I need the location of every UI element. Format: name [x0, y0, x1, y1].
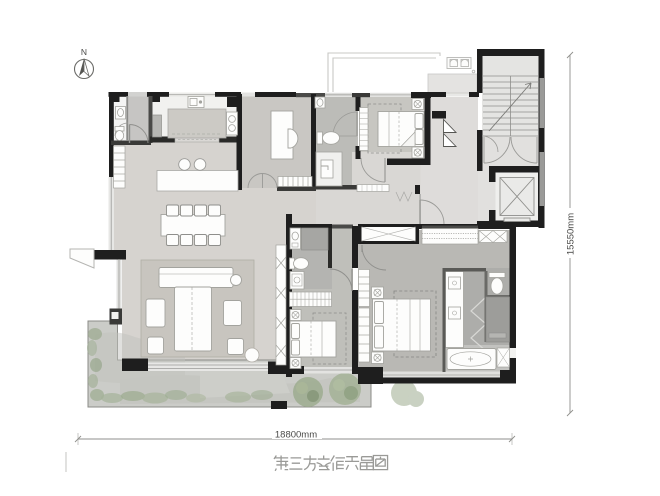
svg-text:N: N	[81, 47, 87, 57]
svg-text:15550mm: 15550mm	[566, 213, 577, 255]
svg-text:18800mm: 18800mm	[275, 430, 317, 441]
